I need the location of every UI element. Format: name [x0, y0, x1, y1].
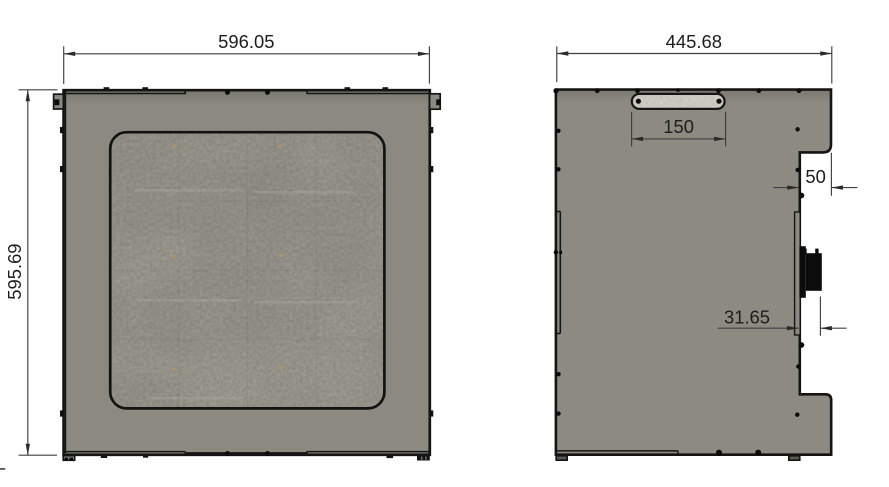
svg-text:595.69: 595.69: [4, 243, 25, 299]
svg-text:150: 150: [663, 116, 694, 137]
svg-text:50: 50: [805, 166, 825, 187]
svg-text:596.05: 596.05: [218, 31, 274, 52]
svg-text:445.68: 445.68: [666, 31, 722, 52]
svg-text:31.65: 31.65: [724, 306, 770, 327]
